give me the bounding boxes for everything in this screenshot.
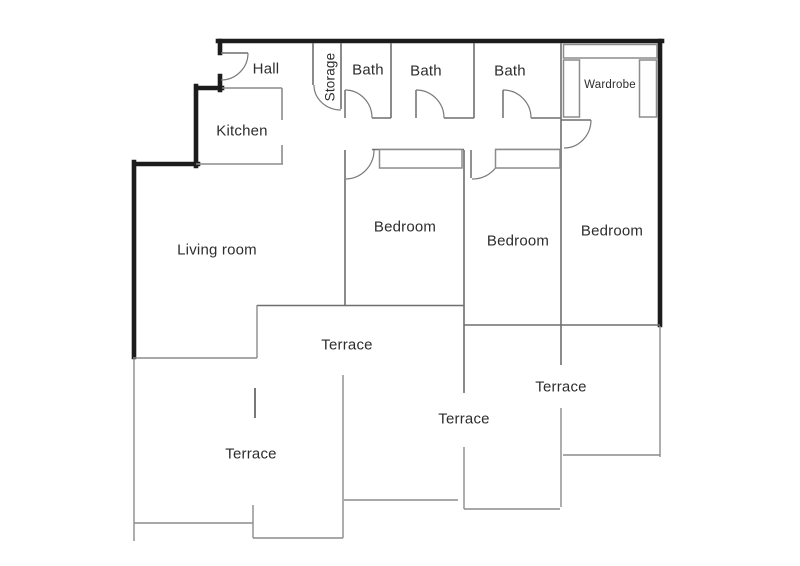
door-arc-wardrobe xyxy=(564,120,591,148)
label-bath-1: Bath xyxy=(352,62,384,79)
label-bedroom-2: Bedroom xyxy=(487,233,549,250)
label-bedroom-3: Bedroom xyxy=(581,223,643,240)
door-arc-bath2 xyxy=(416,90,444,118)
label-bath-3: Bath xyxy=(494,63,526,80)
door-arc-entry xyxy=(221,53,248,80)
label-wardrobe: Wardrobe xyxy=(584,79,636,91)
wall-outer-left-steps xyxy=(134,41,222,357)
door-arc-bath1 xyxy=(345,90,372,118)
label-terrace-middle: Terrace xyxy=(438,411,489,428)
label-bath-2: Bath xyxy=(410,63,442,80)
terrace-lines xyxy=(134,305,660,541)
floor-plan-canvas: Hall Kitchen Storage Bath Bath Bath Ward… xyxy=(0,0,800,566)
wardrobe-shelf-left xyxy=(564,60,580,117)
wardrobe-shelf-right xyxy=(640,60,657,117)
outer-walls xyxy=(134,41,662,357)
door-arc-bath3 xyxy=(503,90,531,118)
label-storage: Storage xyxy=(323,53,338,102)
door-arc-bedroom1 xyxy=(346,150,374,179)
label-terrace-top: Terrace xyxy=(321,337,372,354)
bed-bedroom2 xyxy=(496,150,561,169)
label-bedroom-1: Bedroom xyxy=(374,219,436,236)
label-terrace-left: Terrace xyxy=(225,446,276,463)
bed-bedroom1 xyxy=(380,150,463,169)
label-terrace-right: Terrace xyxy=(535,379,586,396)
interior-walls xyxy=(257,43,660,393)
label-living-room: Living room xyxy=(177,242,257,259)
wardrobe-shelf-top xyxy=(564,45,658,59)
label-hall: Hall xyxy=(253,61,280,78)
label-kitchen: Kitchen xyxy=(216,123,267,140)
floor-plan-drawing xyxy=(0,0,800,566)
